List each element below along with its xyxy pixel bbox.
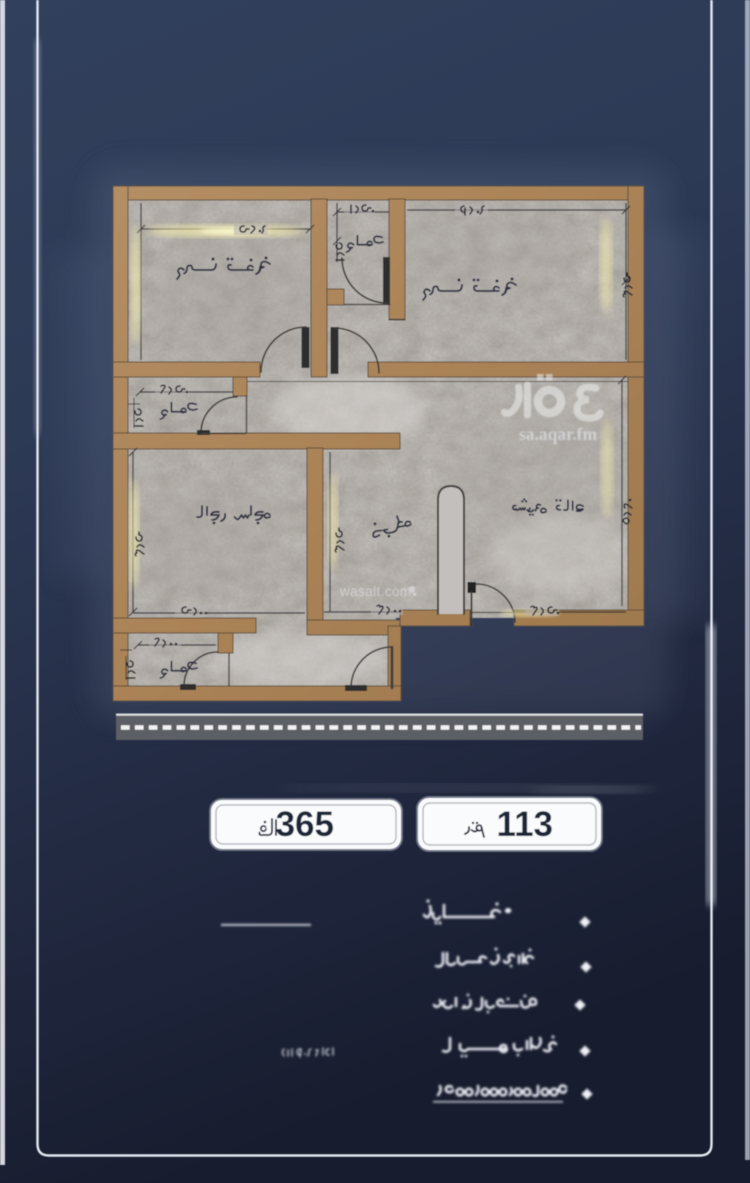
svg-text:wasalt.com: wasalt.com: [339, 584, 412, 599]
svg-text:sa.aqar.fm: sa.aqar.fm: [519, 424, 598, 444]
svg-text:365: 365: [276, 805, 334, 844]
svg-text:113: 113: [497, 805, 553, 844]
